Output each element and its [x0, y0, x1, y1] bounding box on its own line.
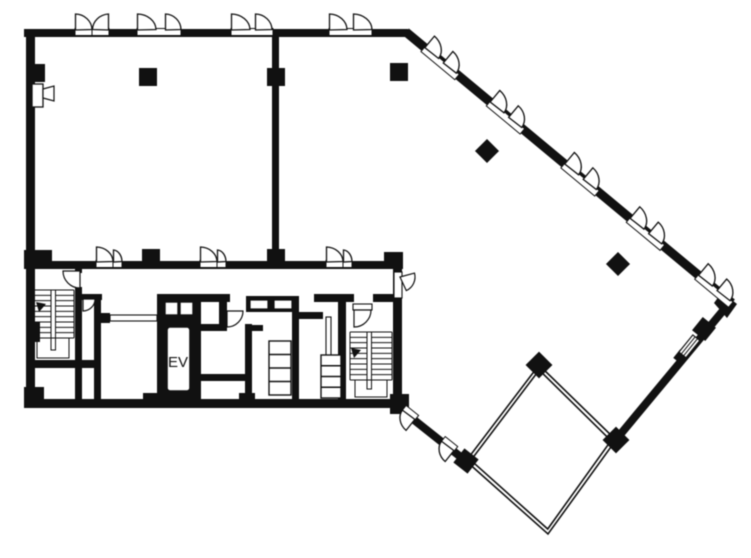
svg-text:EV: EV [168, 354, 188, 371]
